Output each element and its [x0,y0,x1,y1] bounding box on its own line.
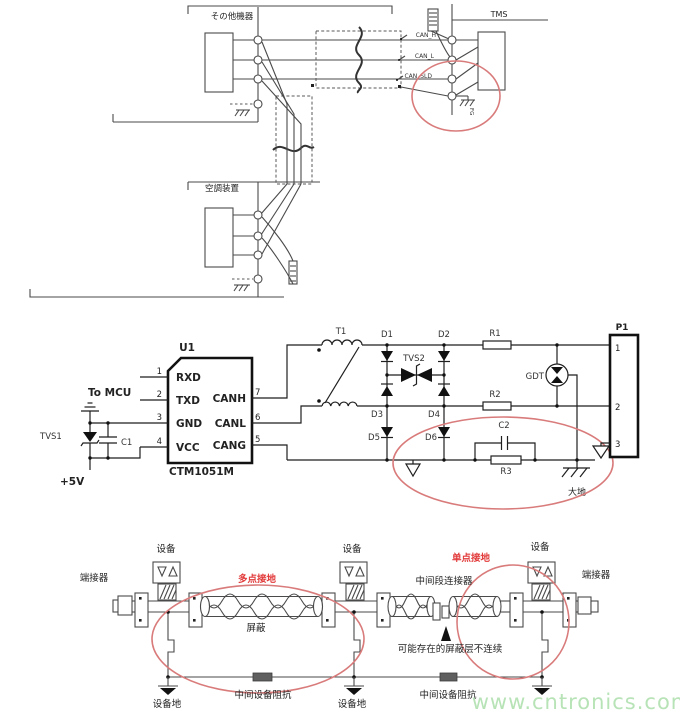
d4-label: D4 [428,410,440,420]
gdt-label: GDT [526,372,545,382]
left-terminator: 端接器 [80,572,132,615]
shielded-tube [388,594,435,619]
left-device: その他機器 [205,7,262,122]
p1-ref: P1 [616,323,629,333]
right-device-label: TMS [490,10,508,19]
impedance-block [440,673,457,681]
arrow-ground-icon [406,460,420,476]
wire-label-canl: CAN_L [415,53,435,60]
pin-name: TXD [176,395,200,407]
impedance-block [253,673,272,681]
device-label: 设备 [342,543,362,555]
discontinuity-label: 可能存在的屏蔽层不连续 [398,643,503,655]
shield-label: 屏蔽 [246,622,266,634]
tvs2-label: TVS2 [402,354,425,364]
supply-label: +5V [60,476,85,488]
d2-label: D2 [438,330,450,340]
ground-label: FG [468,108,474,115]
pin-number: 7 [255,388,260,398]
watermark: www.cntronics.com [472,690,680,714]
t1-label: T1 [335,327,347,337]
r1-label: R1 [489,329,500,339]
bus-wires [261,27,448,254]
chassis-ground-icon [235,110,250,116]
p1-pin: 1 [615,344,620,354]
mid-segment-connector [433,603,451,641]
connector-block [189,593,202,627]
single-ground-label: 单点接地 [452,552,491,564]
bottom-device-label: 空調装置 [205,183,240,194]
d6-label: D6 [425,433,437,443]
mid-connector-label: 中间段连接器 [415,575,473,587]
connector-block [135,593,148,627]
device-node: 设备 [153,543,180,600]
bottom-device: 空調装置 [205,182,297,297]
r3-label: R3 [500,467,511,477]
device-label: 设备 [156,543,176,555]
wire-labels: CAN_H CAN_L CAN_SLD [396,32,436,81]
arrow-ground-icon [593,446,609,458]
pin-number: 1 [157,367,162,377]
d5-label: D5 [368,433,380,443]
terminator-resistor [262,217,297,284]
r2-label: R2 [489,390,500,400]
earth-ground-icon [158,677,178,695]
connector-block [510,593,523,627]
ground-network: C2 R3 大地 [393,417,613,509]
p1-pin: 3 [615,440,620,450]
shielded-tube [201,594,323,619]
pin-name: CANL [215,418,247,430]
d1-label: D1 [381,330,393,340]
pin-number: 6 [255,413,260,423]
middle-schematic: U1 CTM1051M RXD TXD GND VCC 1 2 3 4 CANH… [39,323,638,509]
terminator-left-label: 端接器 [80,572,109,584]
device-node: 设备 [528,541,555,600]
p1-connector: P1 1 2 3 [593,323,638,458]
impedance-label: 中间设备阻抗 [234,689,292,701]
right-device: TMS [412,9,507,131]
d3-label: D3 [371,410,383,420]
pin-number: 5 [255,435,260,445]
left-device-label: その他機器 [211,11,254,22]
pin-number: 4 [157,437,162,447]
c1-label: C1 [121,438,132,448]
supply-protection: TVS1 C1 +5V [39,403,140,488]
u1-part: CTM1051M [169,466,234,478]
device-label: 设备 [530,541,550,553]
series-resistors: R1 R2 [483,329,511,410]
device-node: 设备 [340,543,367,600]
multi-ground-label: 多点接地 [238,573,277,585]
diagram-canvas: その他機器 [0,0,680,716]
to-mcu-label: To MCU [88,387,131,399]
schematic-page: その他機器 [0,0,680,716]
terminator-right-label: 端接器 [582,569,611,581]
pin-name: VCC [176,442,200,454]
p1-pin: 2 [615,403,620,413]
pin-name: GND [176,418,202,430]
u1-ref: U1 [179,342,195,354]
right-terminator: 端接器 [578,569,611,614]
pin-number: 2 [157,390,162,400]
pin-name: RXD [176,372,201,384]
c2-label: C2 [498,421,509,431]
tvs1-diode [81,432,99,470]
device-ground-label: 设备地 [153,698,182,710]
earth-ground-icon [344,677,364,695]
device-ground-label: 设备地 [338,698,367,710]
diode-array: D1 D2 TVS2 D3 D4 D5 D6 [368,330,450,460]
pin-number: 3 [157,413,162,423]
discontinuity-arrow-icon [441,626,451,641]
top-wiring-diagram: その他機器 [30,4,548,297]
t1-choke: T1 [252,327,362,460]
pin-name: CANH [213,393,246,405]
earth-ground-icon [562,460,590,477]
chassis-ground-icon [234,285,250,291]
impedance-label: 中间设备阻抗 [419,689,477,701]
pin-name: CANG [213,440,246,452]
c1-capacitor [99,423,117,458]
bottom-topology-diagram: 端接器 [80,541,611,710]
shield-ground: FG [456,96,475,115]
tvs1-label: TVS1 [39,432,62,442]
wire-label-canh: CAN_H [416,32,436,39]
